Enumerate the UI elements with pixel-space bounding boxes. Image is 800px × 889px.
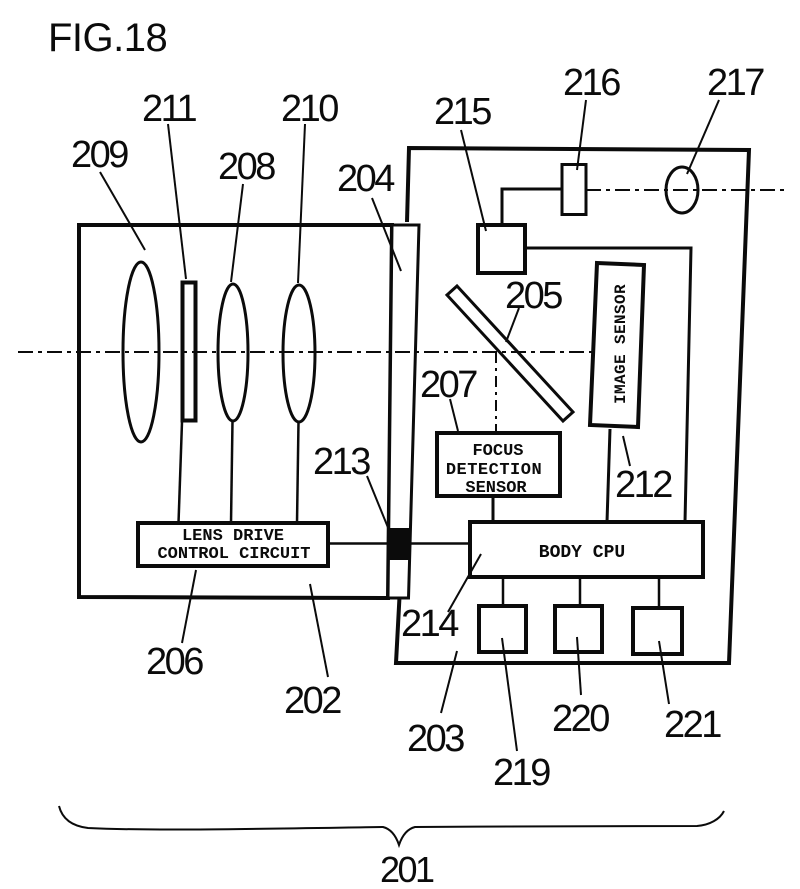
svg-text:220: 220 <box>552 698 609 740</box>
svg-text:FOCUS: FOCUS <box>472 442 523 461</box>
svg-text:BODY CPU: BODY CPU <box>539 543 625 563</box>
svg-text:214: 214 <box>401 603 459 645</box>
svg-text:202: 202 <box>284 680 341 722</box>
svg-text:206: 206 <box>146 641 203 683</box>
svg-text:211: 211 <box>142 88 196 130</box>
svg-text:204: 204 <box>337 158 395 200</box>
svg-text:208: 208 <box>218 146 275 188</box>
svg-text:201: 201 <box>380 849 434 889</box>
svg-text:213: 213 <box>313 441 370 483</box>
svg-text:219: 219 <box>493 752 550 794</box>
svg-text:CONTROL CIRCUIT: CONTROL CIRCUIT <box>157 545 310 564</box>
svg-text:221: 221 <box>664 704 721 746</box>
svg-text:216: 216 <box>563 62 620 104</box>
svg-text:LENS DRIVE: LENS DRIVE <box>182 527 284 546</box>
svg-text:212: 212 <box>615 464 672 506</box>
svg-text:215: 215 <box>434 91 491 133</box>
svg-text:DETECTION: DETECTION <box>446 461 542 480</box>
svg-text:217: 217 <box>707 62 764 104</box>
svg-text:FIG.18: FIG.18 <box>48 16 167 60</box>
svg-text:IMAGE SENSOR: IMAGE SENSOR <box>612 284 630 404</box>
svg-text:203: 203 <box>407 718 464 760</box>
svg-text:SENSOR: SENSOR <box>465 479 527 498</box>
svg-text:209: 209 <box>71 134 128 176</box>
svg-text:207: 207 <box>420 364 477 406</box>
svg-text:210: 210 <box>281 88 338 130</box>
svg-text:205: 205 <box>505 275 562 317</box>
